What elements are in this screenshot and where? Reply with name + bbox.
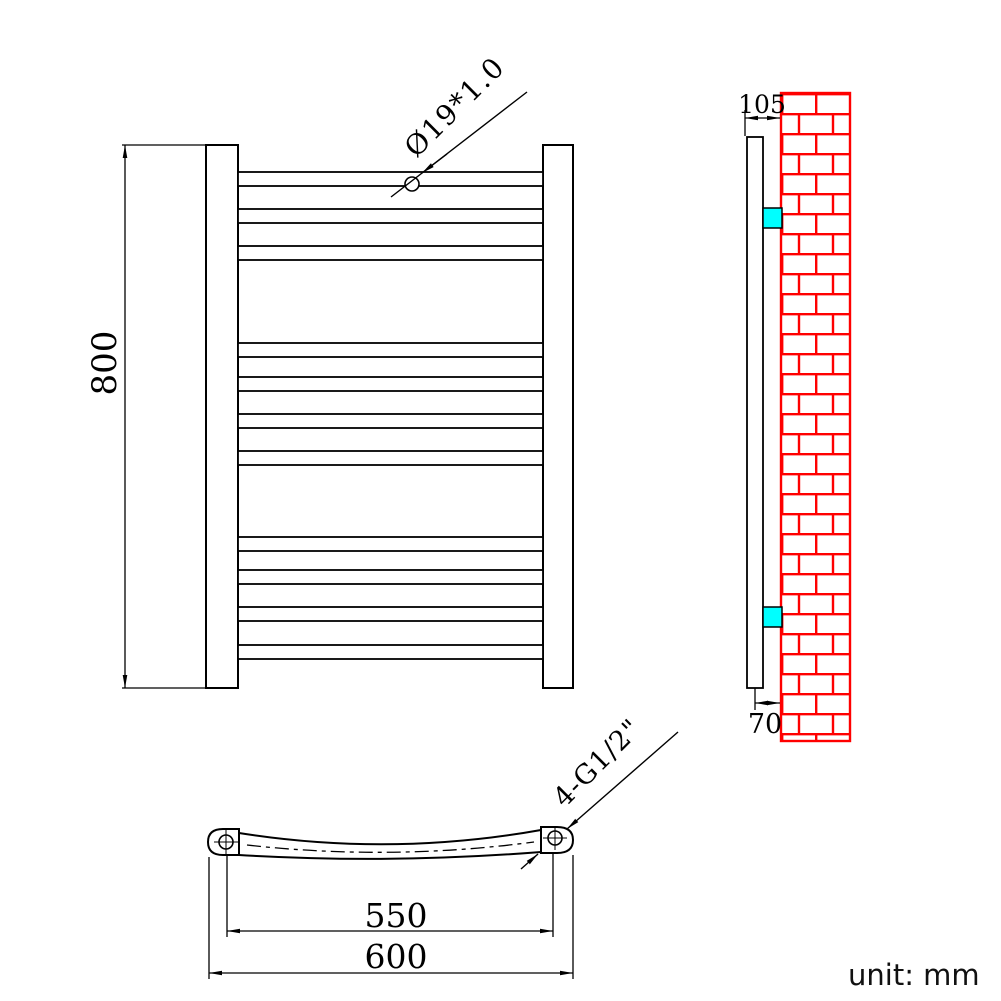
- thread-label: 4-G1/2": [547, 713, 647, 813]
- dim-70-label: 70: [748, 709, 782, 740]
- towel-bar: [238, 570, 543, 584]
- wall-bracket-bottom: [763, 607, 782, 627]
- dim-600-label: 600: [365, 937, 428, 976]
- curved-bar-front-edge: [239, 830, 541, 844]
- thread-leader-lower: [521, 854, 538, 869]
- towel-bar: [238, 172, 543, 186]
- towel-bar: [238, 246, 543, 260]
- tube-spec-label: Ø19*1.0: [398, 50, 512, 164]
- towel-bars: [238, 172, 543, 659]
- towel-bar: [238, 645, 543, 659]
- unit-note: unit: mm: [848, 958, 980, 992]
- side-view: 105 70: [738, 90, 850, 741]
- front-right-rail: [543, 145, 573, 688]
- dim-800-label: 800: [85, 331, 125, 396]
- front-view: 800 Ø19*1.0: [85, 50, 573, 688]
- dim-70: [755, 688, 780, 710]
- towel-bar: [238, 377, 543, 391]
- drawing-canvas: 800 Ø19*1.0 105 70: [0, 0, 1001, 1001]
- dim-800: [122, 145, 206, 688]
- side-profile-tube: [747, 137, 763, 688]
- towel-bar: [238, 209, 543, 223]
- wall-bracket-top: [763, 208, 782, 228]
- towel-bar: [238, 414, 543, 428]
- dim-105-label: 105: [738, 90, 786, 119]
- bottom-view: 4-G1/2" 550 600: [208, 713, 678, 979]
- front-left-rail: [206, 145, 238, 688]
- towel-bar: [238, 607, 543, 621]
- brick-wall: [781, 93, 850, 741]
- dim-550-label: 550: [365, 896, 428, 935]
- towel-radiator-technical-drawing: 800 Ø19*1.0 105 70: [0, 0, 1001, 1001]
- towel-bar: [238, 537, 543, 551]
- curved-bar-back-edge: [239, 852, 541, 859]
- towel-bar: [238, 343, 543, 357]
- towel-bar: [238, 451, 543, 465]
